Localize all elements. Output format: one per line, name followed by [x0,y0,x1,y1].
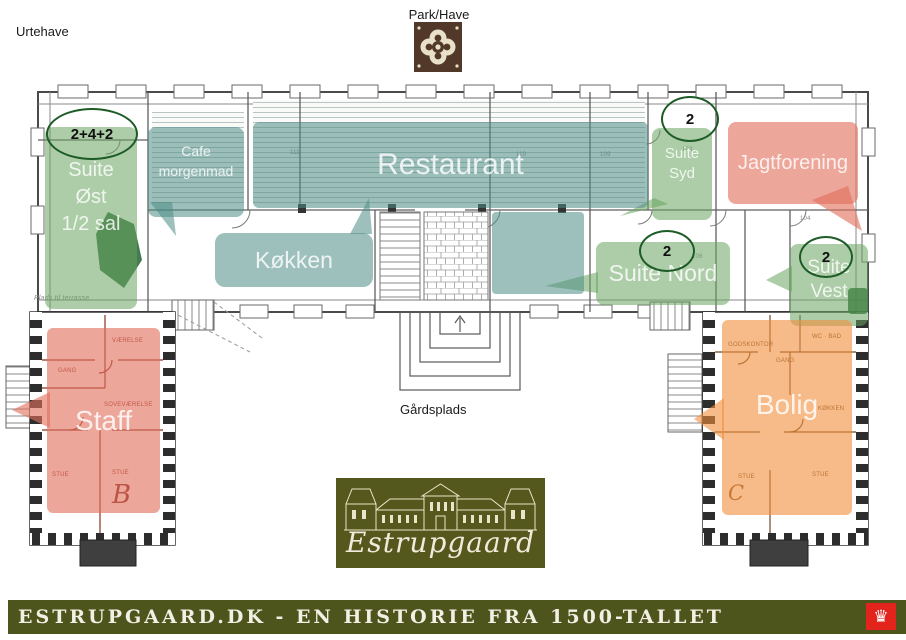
cafe-label-line1: Cafe [148,141,244,161]
estrupgaard-logo-name: Estrupgaard [336,526,545,559]
crown-badge: ♛ [866,603,896,630]
label-urtehave: Urtehave [16,24,69,39]
badge-suite-nord-text: 2 [663,243,671,260]
overlay-restaurant: Restaurant [253,122,648,208]
suite-ost-label-line2: Øst [45,184,137,211]
badge-suite-syd-capacity: 2 [661,96,719,142]
suite-syd-label-line1: Suite [652,144,712,164]
suite-ost-label-line1: Suite [45,157,137,184]
overlay-staff: Staff [47,328,160,513]
overlay-cafe: Cafe morgenmad [148,127,244,217]
label-park-have: Park/Have [404,7,474,22]
overlay-bolig: Bolig [722,320,852,515]
suite-ost-label-line3: 1/2 sal [45,211,137,238]
overlay-jagtforening: Jagtforening [728,122,858,204]
crown-icon: ♛ [873,603,888,630]
park-have-ornament-icon [414,22,462,72]
room-number: 104 [800,216,811,222]
bolig-label: Bolig [756,389,818,420]
jagtforening-label: Jagtforening [738,152,848,174]
cafe-label-line2: morgenmad [148,161,244,181]
badge-suite-syd-text: 2 [686,111,694,128]
restaurant-label: Restaurant [377,148,524,181]
overlay-teal-room [492,212,584,294]
badge-suite-vest-capacity: 2 [799,236,853,278]
suite-syd-label-line2: Syd [652,164,712,184]
footer-title: ESTRUPGAARD.DK - EN HISTORIE FRA 1500-TA… [18,600,724,634]
suite-vest-label-line2: Vest [790,280,868,304]
overlay-kokken: Køkken [215,233,373,287]
kokken-label: Køkken [255,247,333,273]
label-gaardsplads: Gårdsplads [400,402,466,417]
quatrefoil-icon [414,22,462,72]
badge-suite-ost-capacity: 2+4+2 [46,108,138,160]
badge-suite-nord-capacity: 2 [639,230,695,272]
overlay-suite-syd: Suite Syd [652,128,712,220]
badge-suite-vest-text: 2 [822,249,830,266]
staff-label: Staff [75,405,132,436]
estrupgaard-logo: Estrupgaard [336,478,545,568]
footer-banner: ESTRUPGAARD.DK - EN HISTORIE FRA 1500-TA… [8,600,906,634]
badge-suite-ost-text: 2+4+2 [71,126,114,143]
floorplan-slide: B C Suite Øst 1/2 [0,0,906,640]
